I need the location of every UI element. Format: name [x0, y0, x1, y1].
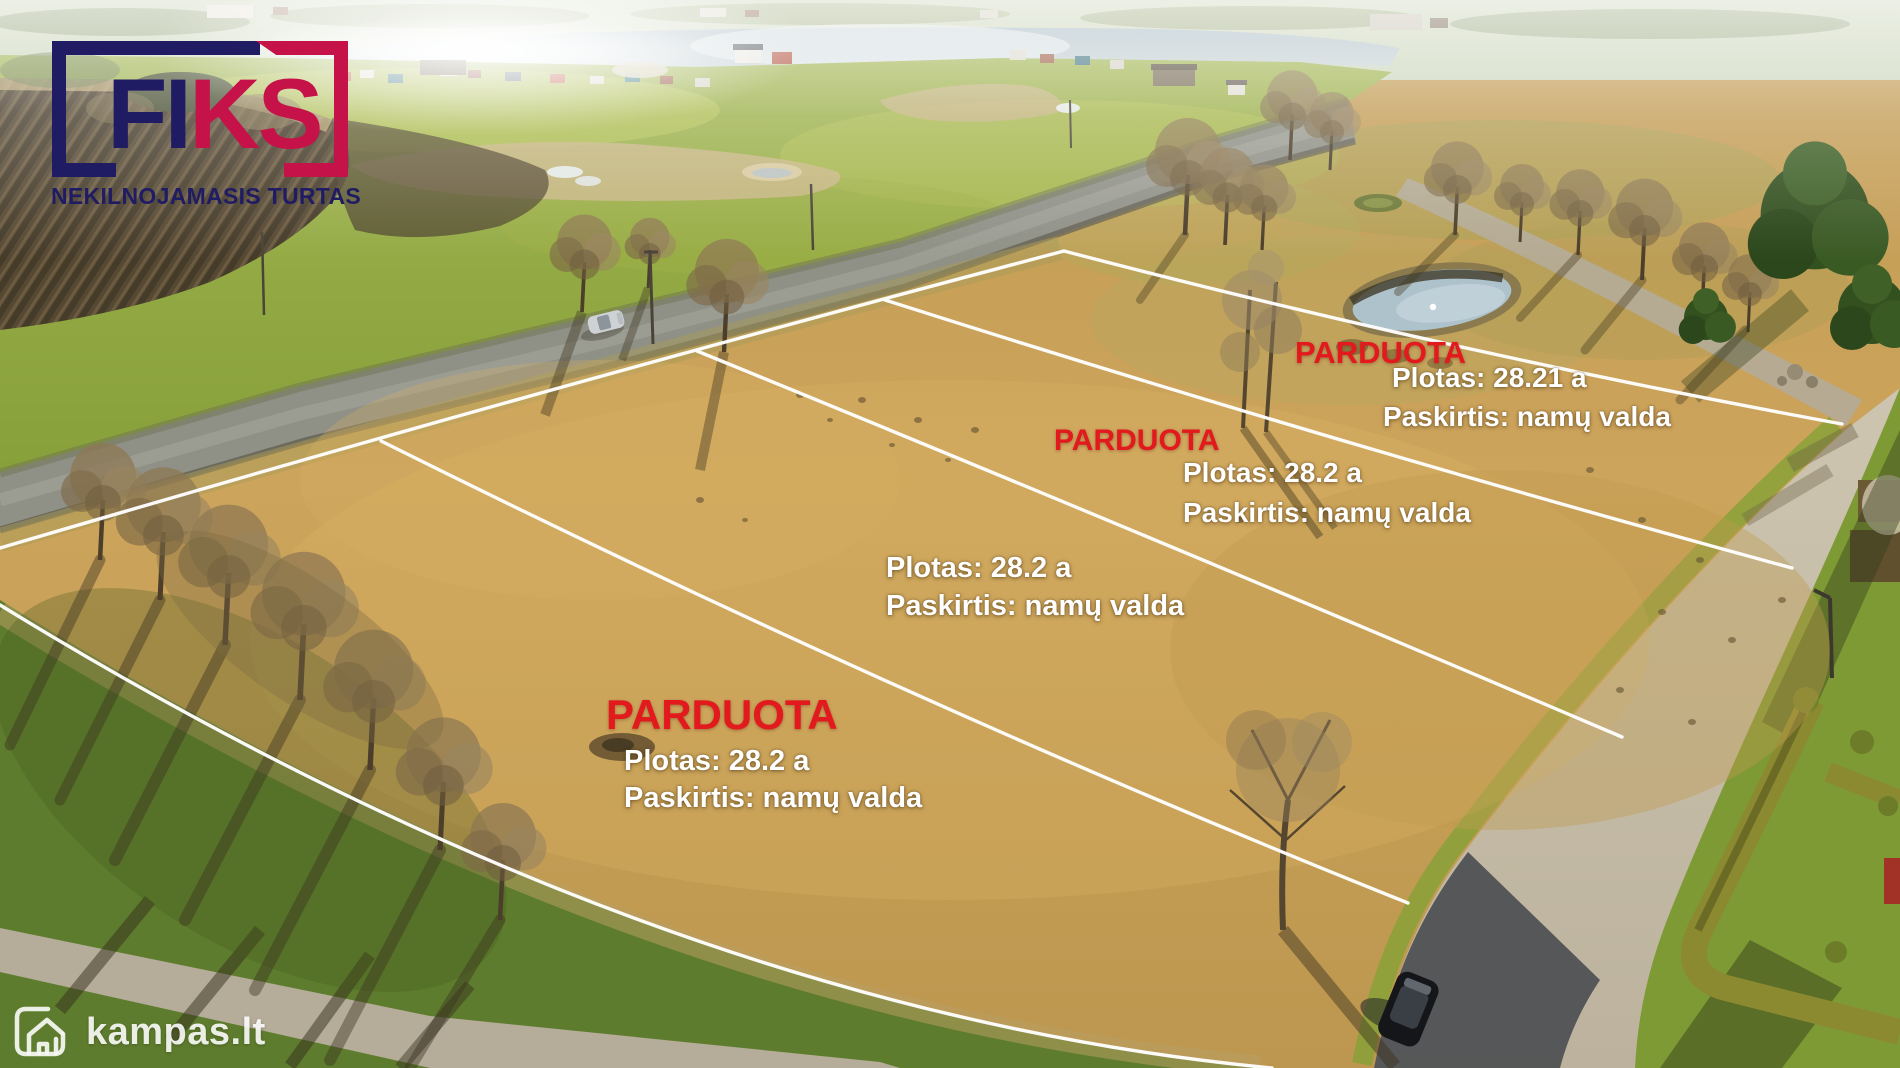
logo-frame-left: [52, 41, 66, 177]
plot3-area-label: Plotas: 28.2 a: [886, 554, 1071, 583]
plot1-area-label: Plotas: 28.21 a: [1392, 364, 1587, 392]
kampas-watermark: kampas.lt: [12, 1004, 266, 1060]
plot4-purpose-label: Paskirtis: namų valda: [624, 784, 922, 813]
plot1-purpose-label: Paskirtis: namų valda: [1383, 403, 1671, 431]
plot2-status-label: PARDUOTA: [1054, 426, 1220, 456]
logo-wordmark-ks: KS: [189, 58, 321, 169]
plot2-purpose-label: Paskirtis: namų valda: [1183, 499, 1471, 527]
logo-frame-top-navy: [52, 41, 260, 55]
logo-wordmark: FIKS: [107, 64, 321, 163]
logo-tagline: NEKILNOJAMASIS TURTAS: [51, 183, 361, 210]
plot3-purpose-label: Paskirtis: namų valda: [886, 592, 1184, 621]
logo-wordmark-fi: FI: [107, 58, 189, 169]
plot4-status-label: PARDUOTA: [606, 694, 838, 736]
aerial-listing-photo: FIKS NEKILNOJAMASIS TURTAS PARDUOTA Plot…: [0, 0, 1900, 1068]
plot2-area-label: Plotas: 28.2 a: [1183, 459, 1362, 487]
kampas-house-icon: [12, 1004, 68, 1060]
kampas-watermark-text: kampas.lt: [86, 1011, 266, 1054]
logo-frame-right: [334, 41, 348, 177]
plot4-area-label: Plotas: 28.2 a: [624, 747, 809, 776]
